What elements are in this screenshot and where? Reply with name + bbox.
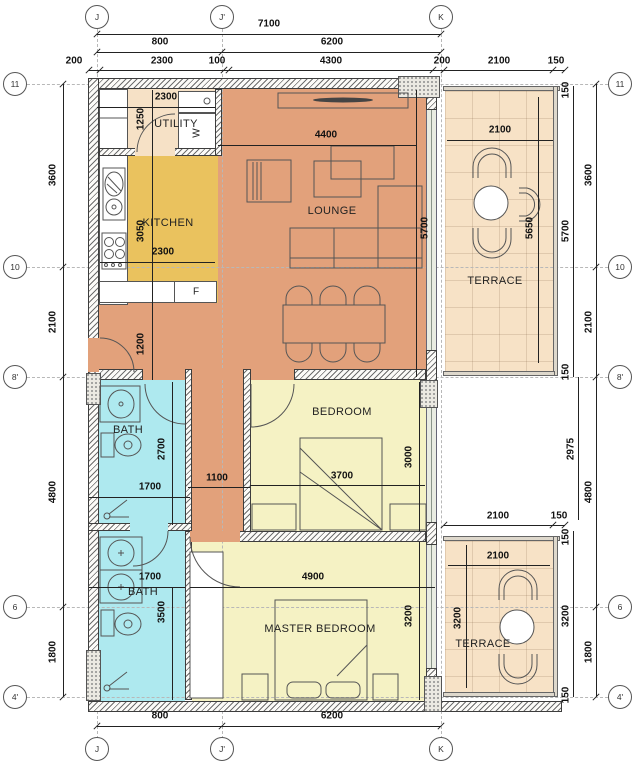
room-label-master-bedroom: MASTER BEDROOM bbox=[264, 623, 375, 635]
dining-chair bbox=[354, 286, 380, 305]
terrace-table bbox=[474, 186, 508, 220]
dim-line bbox=[152, 90, 153, 152]
dim-top-2300: 2300 bbox=[151, 56, 173, 67]
dim-terrace-bottom-h: 3200 bbox=[453, 607, 464, 629]
dim-line bbox=[97, 34, 441, 35]
grid-marker-top-j2: J' bbox=[210, 5, 234, 29]
dim-line bbox=[89, 497, 190, 498]
dim-left-4800: 4800 bbox=[48, 481, 59, 503]
bedroom-furniture bbox=[252, 438, 426, 530]
dim-bedroom-w: 3700 bbox=[331, 471, 353, 482]
dining-chair bbox=[286, 343, 312, 362]
dim-line bbox=[466, 545, 467, 688]
grid-marker-right-4: 4' bbox=[608, 685, 632, 709]
grid-marker-bottom-j: J bbox=[85, 737, 109, 761]
dim-left-1800: 1800 bbox=[48, 641, 59, 663]
dim-hall-h: 1200 bbox=[136, 333, 147, 355]
dim-line bbox=[218, 145, 416, 146]
dim-top-200a: 200 bbox=[66, 56, 83, 67]
door-arc-bedroom bbox=[251, 384, 294, 427]
grid-marker-bottom-j2: J' bbox=[210, 737, 234, 761]
pillow bbox=[287, 682, 321, 698]
grid-marker-right-8: 8' bbox=[608, 365, 632, 389]
dim-line bbox=[97, 726, 441, 727]
dim-right-2100: 2100 bbox=[584, 311, 595, 333]
dim-terrace-bottom-w: 2100 bbox=[487, 551, 509, 562]
dining-chair bbox=[320, 343, 346, 362]
dim-bath-top-h: 2700 bbox=[157, 438, 168, 460]
dim-left-2100: 2100 bbox=[48, 311, 59, 333]
bed bbox=[300, 438, 382, 530]
dim-top-2100: 2100 bbox=[488, 56, 510, 67]
dim-master-w: 4900 bbox=[302, 572, 324, 583]
dim-terrace-bottom-150: 150 bbox=[551, 511, 568, 522]
dim-right-5700: 5700 bbox=[561, 220, 572, 242]
terrace-bottom-furniture bbox=[499, 570, 537, 684]
grid-marker-top-k: K bbox=[429, 5, 453, 29]
dim-right-3200: 3200 bbox=[561, 605, 572, 627]
room-label-bedroom: BEDROOM bbox=[312, 406, 372, 418]
master-bed bbox=[275, 600, 367, 700]
utility-sink-tap bbox=[204, 98, 210, 104]
grid-marker-right-10: 10 bbox=[608, 255, 632, 279]
door-arc-bath-top bbox=[145, 384, 185, 424]
dining-table bbox=[283, 305, 385, 343]
dim-right-150b: 150 bbox=[561, 364, 572, 381]
dining-chair bbox=[286, 286, 312, 305]
dim-bottom-800: 800 bbox=[152, 711, 169, 722]
dim-right-1800: 1800 bbox=[584, 641, 595, 663]
dim-line bbox=[190, 587, 435, 588]
washer-label: W bbox=[192, 128, 203, 137]
dim-right-150a: 150 bbox=[561, 82, 572, 99]
room-label-bath-bottom: BATH bbox=[128, 586, 158, 598]
dim-bottom-6200: 6200 bbox=[321, 711, 343, 722]
dim-bath-bottom-h: 3500 bbox=[157, 601, 168, 623]
furniture-layer bbox=[0, 0, 638, 771]
dim-corridor-w: 1100 bbox=[206, 473, 228, 484]
dim-master-h: 3200 bbox=[404, 605, 415, 627]
grid-marker-top-j: J bbox=[85, 5, 109, 29]
dim-lounge-h: 5700 bbox=[420, 217, 431, 239]
toilet bbox=[101, 433, 114, 457]
coffee-table bbox=[331, 146, 394, 179]
nightstand bbox=[373, 674, 398, 700]
grid-marker-right-11: 11 bbox=[608, 72, 632, 96]
dim-top-6200: 6200 bbox=[321, 37, 343, 48]
dim-right-3600: 3600 bbox=[584, 164, 595, 186]
dim-top-800: 800 bbox=[152, 37, 169, 48]
dim-line bbox=[538, 97, 539, 363]
dim-line bbox=[444, 525, 565, 526]
terrace-top-furniture bbox=[473, 148, 540, 258]
dim-right-2975: 2975 bbox=[566, 438, 577, 460]
dim-top-200b: 200 bbox=[434, 56, 451, 67]
dim-bath-top-w: 1700 bbox=[139, 482, 161, 493]
dim-line bbox=[152, 307, 153, 380]
fridge-label: F bbox=[193, 287, 199, 298]
door-swings bbox=[100, 114, 294, 587]
dim-terrace-bottom-wo: 2100 bbox=[487, 511, 509, 522]
door-arc-entrance bbox=[100, 338, 134, 372]
dim-line bbox=[416, 90, 417, 377]
dim-bedroom-h: 3000 bbox=[404, 446, 415, 468]
nightstand bbox=[390, 504, 426, 530]
bath-top-fixtures bbox=[100, 386, 141, 519]
dim-line bbox=[97, 52, 441, 53]
dim-line bbox=[419, 542, 420, 700]
dim-utility-h: 1250 bbox=[136, 108, 147, 130]
dim-top-total: 7100 bbox=[258, 19, 280, 30]
tv bbox=[313, 98, 373, 103]
dim-line bbox=[100, 262, 215, 263]
dim-line bbox=[89, 70, 565, 71]
dim-line bbox=[578, 377, 579, 520]
dim-line bbox=[250, 485, 425, 486]
floor-plan: 7100 800 6200 200 2300 100 4300 200 2100… bbox=[0, 0, 638, 771]
dim-right-150c: 150 bbox=[561, 529, 572, 546]
room-label-terrace-bottom: TERRACE bbox=[455, 638, 510, 650]
nightstand bbox=[252, 504, 296, 530]
grid-marker-left-11: 11 bbox=[3, 72, 27, 96]
room-label-lounge: LOUNGE bbox=[308, 205, 357, 217]
dim-lounge-w: 4400 bbox=[315, 130, 337, 141]
grid-marker-bottom-k: K bbox=[429, 737, 453, 761]
grid-marker-left-4: 4' bbox=[3, 685, 27, 709]
dim-line bbox=[172, 587, 173, 700]
dim-bath-bottom-w: 1700 bbox=[139, 572, 161, 583]
nightstand bbox=[242, 674, 268, 700]
dim-line bbox=[172, 382, 173, 525]
dim-terrace-top-h: 5650 bbox=[525, 217, 536, 239]
dim-line bbox=[573, 86, 574, 377]
bath-bottom-fixtures bbox=[100, 537, 142, 691]
grid-marker-right-6: 6 bbox=[608, 595, 632, 619]
toilet bbox=[101, 610, 114, 636]
kitchen-sink bbox=[103, 168, 125, 220]
pillow bbox=[326, 682, 360, 698]
dim-left-3600: 3600 bbox=[48, 164, 59, 186]
dim-line bbox=[573, 531, 574, 697]
room-label-terrace-top: TERRACE bbox=[467, 275, 522, 287]
dim-line bbox=[448, 565, 550, 566]
armchair bbox=[247, 160, 291, 202]
grid-marker-left-6: 6 bbox=[3, 595, 27, 619]
room-label-kitchen: KITCHEN bbox=[142, 217, 193, 229]
dim-right-150d: 150 bbox=[561, 687, 572, 704]
dim-line bbox=[188, 487, 250, 488]
door-arc-bath-bottom bbox=[133, 531, 168, 566]
dim-terrace-top-w: 2100 bbox=[489, 125, 511, 136]
dim-utility-w: 2300 bbox=[155, 92, 177, 103]
grid-marker-left-8: 8' bbox=[3, 365, 27, 389]
dining-chair bbox=[320, 286, 346, 305]
dim-top-150: 150 bbox=[548, 56, 565, 67]
dim-kitchen-w: 2300 bbox=[152, 247, 174, 258]
dim-right-4800: 4800 bbox=[584, 481, 595, 503]
dim-top-100: 100 bbox=[209, 56, 226, 67]
grid-marker-left-10: 10 bbox=[3, 255, 27, 279]
room-label-bath-top: BATH bbox=[113, 424, 143, 436]
dim-line bbox=[97, 107, 215, 108]
dim-line bbox=[152, 152, 153, 320]
dim-line bbox=[419, 382, 420, 531]
dim-top-4300: 4300 bbox=[320, 56, 342, 67]
dining-chair bbox=[354, 343, 380, 362]
